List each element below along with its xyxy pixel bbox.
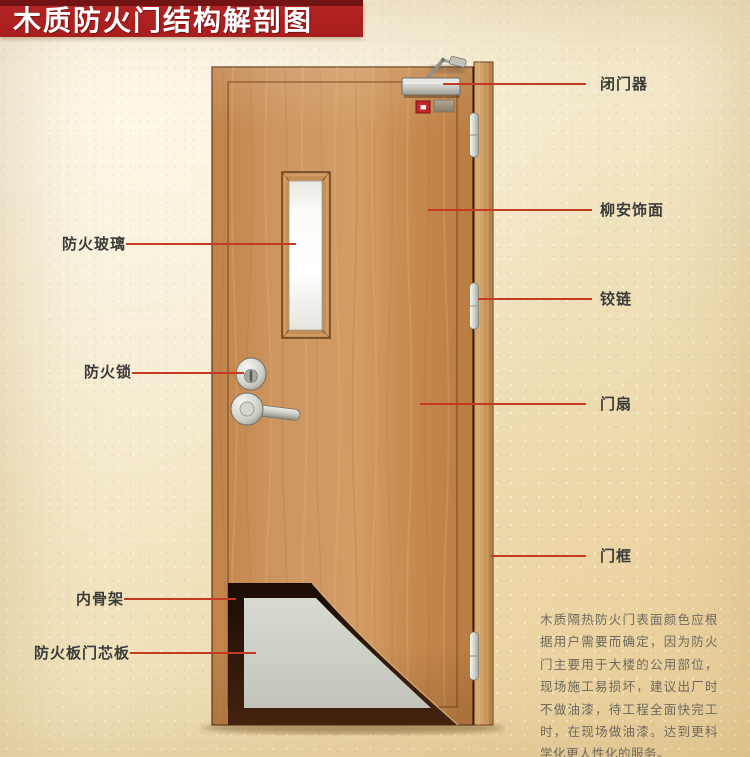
title-banner: 木质防火门结构解剖图 bbox=[0, 0, 363, 37]
leader-fire-glass bbox=[126, 243, 296, 245]
label-fire-lock: 防火锁 bbox=[84, 364, 132, 382]
hinge-top bbox=[470, 113, 479, 157]
leader-door-leaf bbox=[420, 403, 586, 405]
leader-inner-skeleton bbox=[124, 598, 236, 600]
label-fire-glass: 防火玻璃 bbox=[62, 236, 126, 254]
hinge-bottom bbox=[470, 632, 479, 680]
leader-lauan-veneer bbox=[428, 209, 592, 211]
page-title: 木质防火门结构解剖图 bbox=[0, 6, 363, 36]
leader-door-closer bbox=[443, 83, 586, 85]
hinge-middle bbox=[470, 283, 479, 329]
strike-plate bbox=[434, 100, 454, 112]
label-door-frame: 门框 bbox=[600, 548, 632, 566]
leader-fire-lock bbox=[132, 372, 244, 374]
description-text: 木质隔热防火门表面颜色应根据用户需要而确定，因为防火门主要用于大楼的公用部位，现… bbox=[540, 609, 718, 757]
label-hinge: 铰链 bbox=[600, 291, 632, 309]
fire-glass-window bbox=[282, 172, 330, 338]
label-fire-board-core: 防火板门芯板 bbox=[34, 645, 130, 663]
label-inner-skeleton: 内骨架 bbox=[76, 591, 124, 609]
leader-fire-board-core bbox=[130, 652, 256, 654]
glass-pane bbox=[289, 181, 322, 330]
door-illustration bbox=[195, 50, 505, 740]
leader-door-frame bbox=[491, 555, 586, 557]
leader-hinge bbox=[478, 298, 592, 300]
label-door-closer: 闭门器 bbox=[600, 76, 648, 94]
closer-body bbox=[402, 78, 460, 95]
door-frame-strip bbox=[474, 62, 493, 725]
label-door-leaf: 门扇 bbox=[600, 396, 632, 414]
label-lauan-veneer: 柳安饰面 bbox=[600, 202, 664, 220]
fire-door-diagram-poster: 木质防火门结构解剖图 bbox=[0, 0, 750, 757]
